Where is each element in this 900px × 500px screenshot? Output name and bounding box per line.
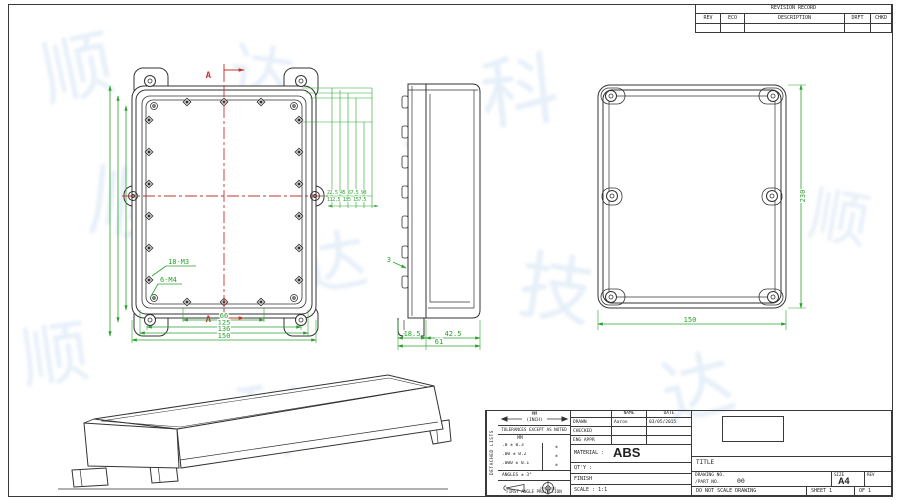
part-no-value: 00 (737, 478, 745, 485)
do-not-scale: DO NOT SCALE DRAWING (691, 486, 806, 495)
tolerance-note: TOLERANCES EXCEPT AS NOTED (498, 426, 571, 435)
dim-42-5: 42.5 (445, 330, 462, 338)
title-block-strip: DETACHED LISTS (486, 411, 498, 495)
drawing-no-label: DRAWING NO. (695, 473, 725, 478)
drawing-sheet: 顺 达 科 技 顺 达 技 顺 科 达 顺 达 (0, 0, 900, 500)
revision-col-drft: DRFT (844, 14, 870, 24)
revision-empty-cell (720, 24, 744, 33)
dim-18-5: 18.5 (404, 330, 421, 338)
revision-table: REVISION RECORD REV ECO DESCRIPTION DRFT… (695, 4, 892, 33)
logo-area (691, 411, 893, 456)
part-no-label: /PART NO. (695, 480, 719, 485)
dim-label-18-M3: 18-M3 (168, 258, 189, 266)
revision-table-title: REVISION RECORD (696, 5, 891, 14)
isometric-view (58, 375, 451, 489)
lid-view (598, 85, 786, 308)
revision-empty-cell (696, 24, 720, 33)
finish-row: FINISH (571, 474, 691, 485)
tol-row-inch: ± (542, 443, 570, 452)
section-label-top: A (206, 71, 212, 81)
dim-230: 230 (799, 190, 807, 203)
dim-cluster-row2: 112.5 135 157.5 (327, 197, 367, 203)
size-value: A4 (838, 476, 850, 486)
units-mm-label: MM (522, 412, 547, 417)
drawn-date: 03/05/2015 (646, 418, 691, 427)
of-cell: OF 1 (854, 486, 893, 495)
dim-label-6-M4: 6-M4 (160, 276, 177, 284)
drawn-name: Aaron (611, 418, 646, 427)
scale-row: SCALE : 1:1 (571, 485, 691, 495)
date-header: DATE (646, 411, 691, 418)
title-block: DETACHED LISTS MM (INCH) TOLERANCES EXCE… (485, 410, 892, 496)
title-row: TITLE (691, 456, 893, 471)
revision-col-rev: REV (696, 14, 720, 24)
side-view (398, 84, 480, 336)
projection-label: FIRST ANGLE PROJECTION (498, 489, 571, 495)
revision-col-chkd: CHKD (870, 14, 891, 24)
dim-3: 3 (387, 256, 391, 264)
revision-empty-cell (870, 24, 891, 33)
tol-row-mm: .0 ± 0.3 (502, 443, 542, 452)
approval-header-blank (571, 411, 611, 418)
material-value: ABS (613, 446, 640, 461)
name-header: NAME (611, 411, 646, 418)
qty-row: QT'Y : (571, 463, 691, 474)
material-label: MATERIAL : (574, 451, 604, 457)
units-row: MM (INCH) (498, 411, 571, 426)
tolerance-table: MM .0 ± 0.3 .00 ± 0.2 .000 ± 0.1 ± ± ± (498, 435, 571, 471)
dim-150: 150 (218, 332, 231, 340)
rev-cell: REV (864, 471, 893, 486)
tol-row-mm: .000 ± 0.1 (502, 461, 542, 470)
revision-empty-cell (844, 24, 870, 33)
tol-row-mm: .00 ± 0.2 (502, 452, 542, 461)
angles-tolerance: ANGLES ± 3° (498, 471, 571, 481)
sheet-cell: SHEET 1 (806, 486, 854, 495)
checked-name (611, 427, 646, 436)
tol-row-inch: ± (542, 452, 570, 461)
units-inch-label: (INCH) (520, 418, 549, 423)
rev-label: REV (867, 473, 875, 478)
material-row: MATERIAL : ABS (571, 445, 691, 463)
dim-cluster-row1: 22.5 45 67.5 90 (327, 190, 367, 196)
size-cell: SIZE A4 (831, 471, 864, 486)
checked-date (646, 427, 691, 436)
drawn-label: DRAWN (571, 418, 611, 427)
checked-label: CHECKED (571, 427, 611, 436)
tol-row-inch: ± (542, 461, 570, 470)
revision-empty-cell (744, 24, 844, 33)
revision-col-eco: ECO (720, 14, 744, 24)
eng-appr-date (646, 436, 691, 445)
dim-150-lid: 150 (684, 316, 697, 324)
drawing-no-cell: DRAWING NO. /PART NO. 00 (691, 471, 831, 486)
revision-col-description: DESCRIPTION (744, 14, 844, 24)
eng-appr-name (611, 436, 646, 445)
eng-appr-label: ENG APPR (571, 436, 611, 445)
dim-61: 61 (435, 338, 443, 346)
logo-box (722, 416, 784, 442)
tol-header-mm: MM (498, 435, 542, 443)
